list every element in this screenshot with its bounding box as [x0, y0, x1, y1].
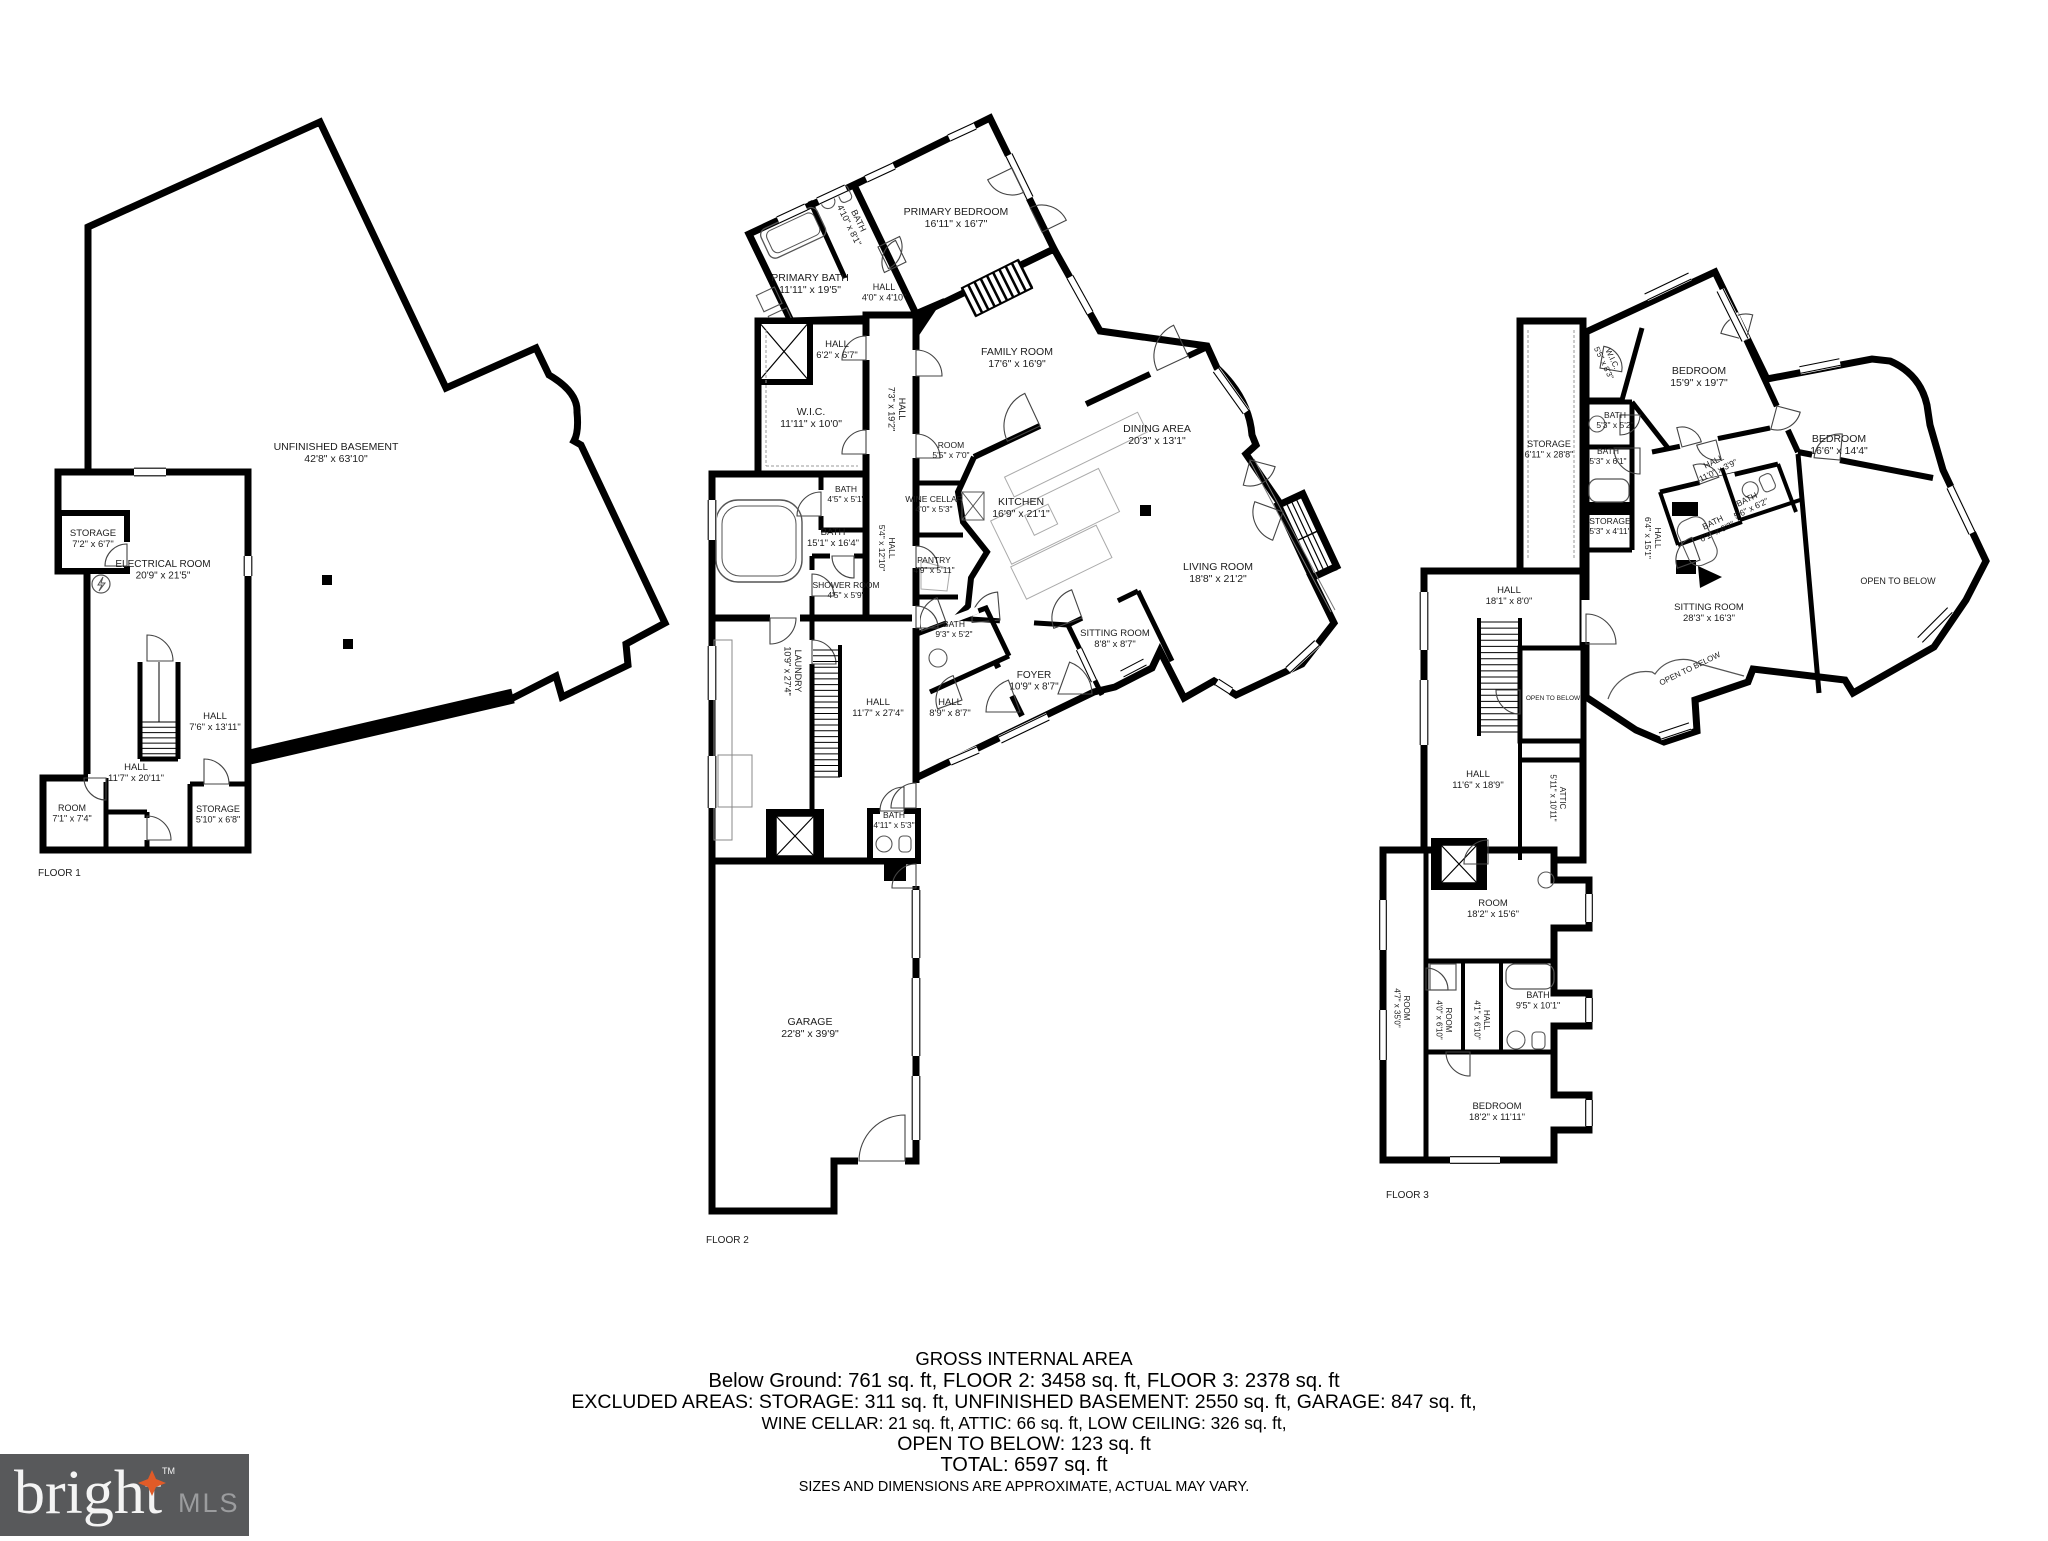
svg-text:WINE CELLAR: 21 sq. ft, ATTIC:: WINE CELLAR: 21 sq. ft, ATTIC: 66 sq. ft… — [761, 1413, 1286, 1433]
svg-text:FLOOR 2: FLOOR 2 — [706, 1235, 749, 1246]
svg-text:Below Ground: 761 sq. ft, FLOO: Below Ground: 761 sq. ft, FLOOR 2: 3458 … — [708, 1370, 1340, 1392]
svg-text:FLOOR 1: FLOOR 1 — [38, 868, 81, 879]
svg-text:BEDROOM16'6" x 14'4": BEDROOM16'6" x 14'4" — [1810, 433, 1868, 457]
svg-text:SIZES AND DIMENSIONS ARE APPRO: SIZES AND DIMENSIONS ARE APPROXIMATE, AC… — [799, 1479, 1250, 1495]
svg-text:SITTING ROOM28'3" x 16'3": SITTING ROOM28'3" x 16'3" — [1674, 602, 1744, 624]
svg-text:BEDROOM15'9" x 19'7": BEDROOM15'9" x 19'7" — [1670, 365, 1728, 389]
svg-text:STORAGE5'10" x 6'8": STORAGE5'10" x 6'8" — [196, 804, 240, 825]
svg-text:BEDROOM18'2" x 11'11": BEDROOM18'2" x 11'11" — [1469, 1101, 1525, 1123]
svg-text:TM: TM — [162, 1466, 175, 1476]
svg-text:KITCHEN16'9" x 21'1": KITCHEN16'9" x 21'1" — [992, 496, 1050, 520]
svg-text:ROOM5'5" x 7'0": ROOM5'5" x 7'0" — [932, 440, 969, 460]
svg-text:FAMILY ROOM17'6" x 16'9": FAMILY ROOM17'6" x 16'9" — [981, 346, 1053, 370]
svg-text:bright: bright — [14, 1459, 162, 1527]
svg-text:STORAGE7'2" x 6'7": STORAGE7'2" x 6'7" — [70, 528, 116, 550]
svg-text:PANTRY4'9" x 5'11": PANTRY4'9" x 5'11" — [913, 555, 954, 575]
svg-text:STORAGE6'11" x 28'8": STORAGE6'11" x 28'8" — [1525, 439, 1574, 460]
svg-text:EXCLUDED AREAS: STORAGE: 311 s: EXCLUDED AREAS: STORAGE: 311 sq. ft, UNF… — [571, 1391, 1476, 1413]
svg-text:OPEN TO BELOW: OPEN TO BELOW — [1860, 576, 1936, 586]
svg-text:GROSS INTERNAL AREA: GROSS INTERNAL AREA — [915, 1348, 1133, 1369]
svg-text:TOTAL: 6597 sq. ft: TOTAL: 6597 sq. ft — [940, 1454, 1108, 1476]
svg-text:LAUNDRY10'9" x 27'4": LAUNDRY10'9" x 27'4" — [783, 646, 804, 695]
svg-text:PRIMARY BATH11'11" x 19'5": PRIMARY BATH11'11" x 19'5" — [771, 272, 849, 296]
svg-text:GARAGE22'8" x 39'9": GARAGE22'8" x 39'9" — [781, 1016, 839, 1040]
svg-text:DINING AREA20'3" x 13'1": DINING AREA20'3" x 13'1" — [1123, 423, 1191, 447]
svg-text:STORAGE5'3" x 4'11": STORAGE5'3" x 4'11" — [1589, 516, 1631, 536]
svg-text:OPEN TO BELOW: OPEN TO BELOW — [1526, 695, 1581, 702]
svg-text:OPEN TO BELOW: 123 sq. ft: OPEN TO BELOW: 123 sq. ft — [897, 1433, 1151, 1455]
svg-text:ROOM7'1" x 7'4": ROOM7'1" x 7'4" — [52, 803, 91, 824]
svg-text:LIVING ROOM18'8" x 21'2": LIVING ROOM18'8" x 21'2" — [1183, 561, 1253, 585]
svg-text:MLS: MLS — [178, 1488, 240, 1518]
svg-text:FLOOR 3: FLOOR 3 — [1386, 1190, 1429, 1201]
